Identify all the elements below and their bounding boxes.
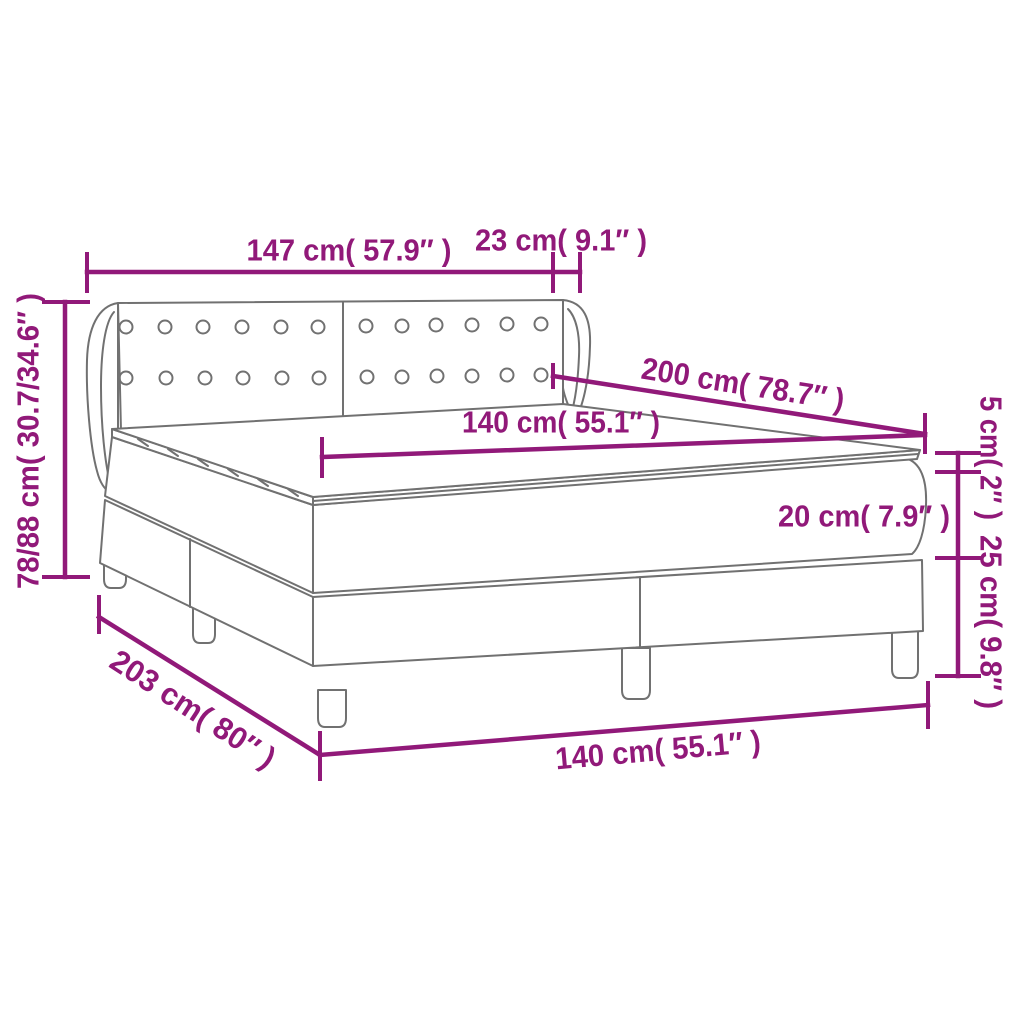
topper-height-label: 5 cm( 2″ ) (974, 396, 1009, 520)
diagram-canvas: 147 cm( 57.9″ ) 23 cm( 9.1″ ) 78/88 cm( … (0, 0, 1024, 1024)
total-height-label: 78/88 cm( 30.7/34.6″ ) (11, 293, 46, 589)
wing-depth-label: 23 cm( 9.1″ ) (475, 223, 647, 258)
dim-total-height: 78/88 cm( 30.7/34.6″ ) (11, 293, 89, 589)
product-dimension-diagram: 147 cm( 57.9″ ) 23 cm( 9.1″ ) 78/88 cm( … (0, 0, 1024, 1024)
headboard-right-wing (563, 300, 590, 420)
mattress-height-label: 20 cm( 7.9″ ) (778, 499, 950, 534)
leg (622, 648, 650, 699)
headboard-width-label: 147 cm( 57.9″ ) (247, 233, 452, 268)
dim-headboard-width: 147 cm( 57.9″ ) 23 cm( 9.1″ ) (87, 223, 647, 292)
leg (318, 690, 346, 727)
base-length-label: 203 cm( 80″ ) (104, 643, 282, 776)
mattress-width-label: 140 cm( 55.1″ ) (462, 405, 660, 440)
base-height-label: 25 cm( 9.8″ ) (974, 535, 1009, 709)
leg (892, 629, 918, 678)
